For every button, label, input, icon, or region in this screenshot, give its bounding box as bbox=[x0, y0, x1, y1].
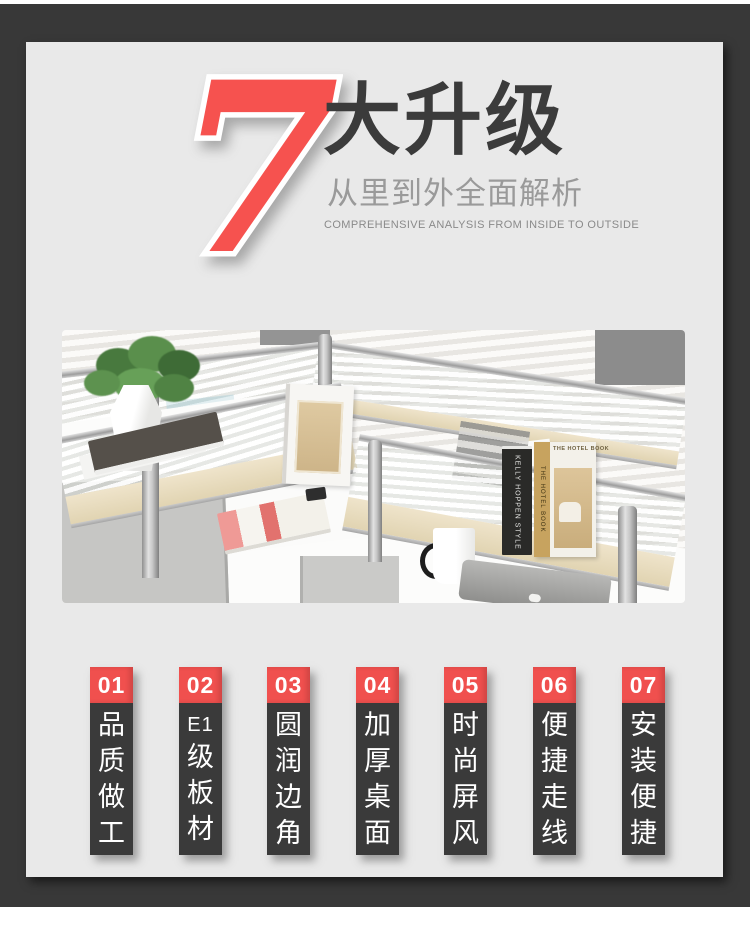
feature-char: 捷 bbox=[630, 820, 657, 847]
wall-patch-right bbox=[595, 330, 685, 385]
standing-booklet bbox=[282, 384, 354, 487]
feature-char: 面 bbox=[364, 820, 391, 847]
feature-char: 板 bbox=[187, 780, 214, 807]
feature-char: 角 bbox=[275, 820, 302, 847]
feature-label: 时 尚 屏 风 bbox=[444, 703, 487, 855]
feature-char: 厚 bbox=[364, 748, 391, 775]
book-hotel-cover-image bbox=[554, 468, 592, 548]
aluminum-post-mid-right bbox=[368, 440, 382, 562]
feature-number-badge: 06 bbox=[533, 667, 576, 703]
plant-foliage bbox=[154, 374, 194, 402]
feature-item-05: 05 时 尚 屏 风 bbox=[444, 667, 487, 855]
book-hotel-spine: THE HOTEL BOOK bbox=[534, 442, 550, 557]
book-black-spine-text: KELLY HOPPEN STYLE bbox=[514, 455, 521, 550]
feature-number-badge: 02 bbox=[179, 667, 222, 703]
feature-char: 桌 bbox=[364, 784, 391, 811]
feature-char: 边 bbox=[275, 784, 302, 811]
feature-char: 材 bbox=[187, 816, 214, 843]
product-photo: KELLY HOPPEN STYLE THE HOTEL BOOK THE HO… bbox=[62, 330, 685, 603]
feature-char: 级 bbox=[187, 744, 214, 771]
feature-number-badge: 05 bbox=[444, 667, 487, 703]
feature-number-badge: 01 bbox=[90, 667, 133, 703]
feature-char: 质 bbox=[98, 748, 125, 775]
book-hotel-spine-text: THE HOTEL BOOK bbox=[539, 466, 545, 532]
big-number-7-fill: 7 bbox=[176, 52, 340, 287]
page-subtitle: 从里到外全面解析 bbox=[327, 178, 583, 209]
feature-char: E1 bbox=[187, 715, 213, 735]
feature-item-03: 03 圆 润 边 角 bbox=[267, 667, 310, 855]
feature-char: 尚 bbox=[452, 748, 479, 775]
feature-char: 工 bbox=[98, 820, 125, 847]
feature-char: 时 bbox=[452, 712, 479, 739]
feature-char: 润 bbox=[275, 748, 302, 775]
cabinet-front-mid bbox=[300, 556, 399, 603]
feature-char: 捷 bbox=[541, 748, 568, 775]
feature-char: 品 bbox=[98, 712, 125, 739]
feature-char: 圆 bbox=[275, 712, 302, 739]
feature-char: 安 bbox=[630, 712, 657, 739]
book-hotel-cover-title: THE HOTEL BOOK bbox=[553, 446, 609, 452]
aluminum-post-far-right bbox=[618, 506, 637, 603]
feature-item-07: 07 安 装 便 捷 bbox=[622, 667, 665, 855]
book-hotel: THE HOTEL BOOK THE HOTEL BOOK bbox=[534, 442, 596, 557]
feature-char: 装 bbox=[630, 748, 657, 775]
feature-char: 便 bbox=[630, 784, 657, 811]
feature-label: E1 级 板 材 bbox=[179, 703, 222, 855]
feature-number-badge: 03 bbox=[267, 667, 310, 703]
feature-label: 便 捷 走 线 bbox=[533, 703, 576, 855]
plant-foliage bbox=[84, 370, 120, 396]
promo-page: 7 7 大升级 从里到外全面解析 COMPREHENSIVE ANALYSIS … bbox=[0, 0, 750, 932]
content-panel: 7 7 大升级 从里到外全面解析 COMPREHENSIVE ANALYSIS … bbox=[26, 42, 723, 877]
book-black: KELLY HOPPEN STYLE bbox=[502, 446, 532, 555]
feature-item-01: 01 品 质 做 工 bbox=[90, 667, 133, 855]
dark-frame: 7 7 大升级 从里到外全面解析 COMPREHENSIVE ANALYSIS … bbox=[0, 4, 750, 907]
feature-char: 屏 bbox=[452, 784, 479, 811]
feature-char: 走 bbox=[541, 784, 568, 811]
feature-char: 线 bbox=[541, 820, 568, 847]
feature-label: 圆 润 边 角 bbox=[267, 703, 310, 855]
feature-char: 做 bbox=[98, 784, 125, 811]
booklet-cover-image bbox=[294, 400, 343, 474]
page-subtitle-english: COMPREHENSIVE ANALYSIS FROM INSIDE TO OU… bbox=[324, 220, 639, 231]
feature-item-04: 04 加 厚 桌 面 bbox=[356, 667, 399, 855]
armchair-shape bbox=[559, 502, 581, 522]
feature-label: 安 装 便 捷 bbox=[622, 703, 665, 855]
page-title: 大升级 bbox=[323, 82, 566, 160]
feature-char: 加 bbox=[364, 712, 391, 739]
grommet-hole bbox=[528, 593, 541, 602]
feature-label: 品 质 做 工 bbox=[90, 703, 133, 855]
feature-number-badge: 04 bbox=[356, 667, 399, 703]
feature-number-badge: 07 bbox=[622, 667, 665, 703]
feature-char: 风 bbox=[452, 820, 479, 847]
feature-item-02: 02 E1 级 板 材 bbox=[179, 667, 222, 855]
feature-label: 加 厚 桌 面 bbox=[356, 703, 399, 855]
book-hotel-cover: THE HOTEL BOOK bbox=[550, 442, 596, 557]
feature-char: 便 bbox=[541, 712, 568, 739]
feature-item-06: 06 便 捷 走 线 bbox=[533, 667, 576, 855]
